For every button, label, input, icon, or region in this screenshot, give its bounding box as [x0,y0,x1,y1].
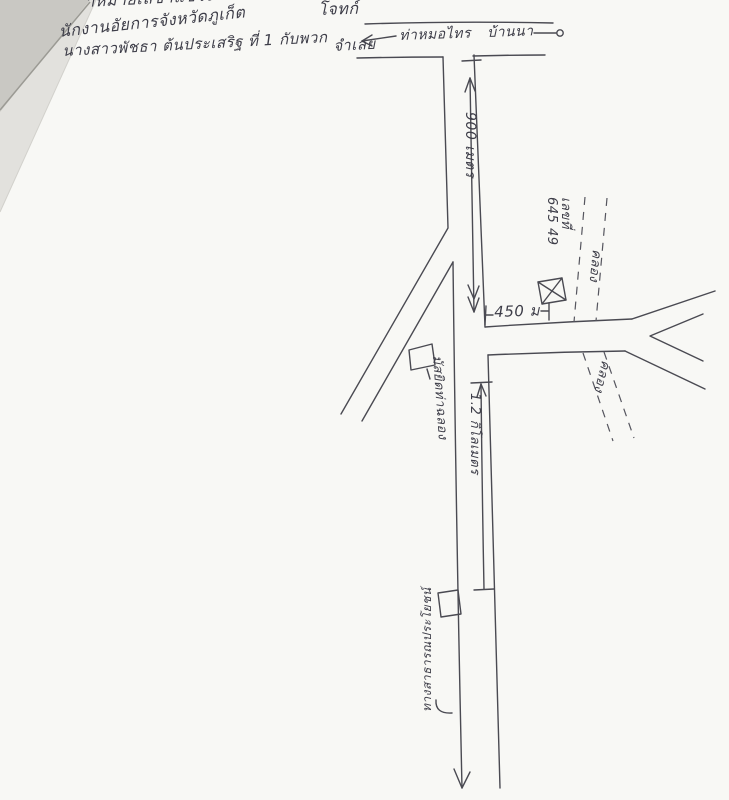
public-road-label: ทางสาธารณประโยชน์ [421,587,434,712]
main-road-upper [341,55,485,414]
east-road [485,319,632,355]
scanned-hand-drawn-map-page: { "header": { "line1": "าหมายเลขาแขวงฯ",… [0,0,729,800]
distance-label-450m: 450 ม [494,303,540,320]
top-road-lower-edge-left [357,57,443,58]
road-label-ban-na: บ้านนา [487,24,534,40]
parcel-number-line-1: เลขที่ [558,197,572,246]
distance-label-900m: 900 เมตร [462,112,477,178]
plaintiff-label: โจทก์ [318,1,359,19]
main-road-lower [453,262,500,788]
parcel-number-label: เลขที่ 645 49 [545,197,572,246]
defendant-label: จำเลย [333,37,376,55]
parcel-number-line-2: 645 49 [545,197,559,246]
main-road-right-edge-lower [488,355,500,788]
map-drawing [0,0,729,800]
distance-label-1-2km: 1.2 กิโลเมตร [467,393,481,475]
south-road-label-leader [436,700,452,713]
arrow-right-icon [534,30,563,36]
canal-label-upper: คลอง [586,249,603,283]
parcel-marker-box [538,278,566,304]
canal-upper-left-line [574,197,585,322]
road-fork [625,291,715,389]
road-label-tha-mo-sai: ท่าหมอไทร [399,26,471,43]
dimension-line-900m [462,60,481,312]
top-road-lower-edge-right [473,55,545,56]
main-road-left-edge-lower [453,262,462,788]
fork-chevron [650,314,703,361]
